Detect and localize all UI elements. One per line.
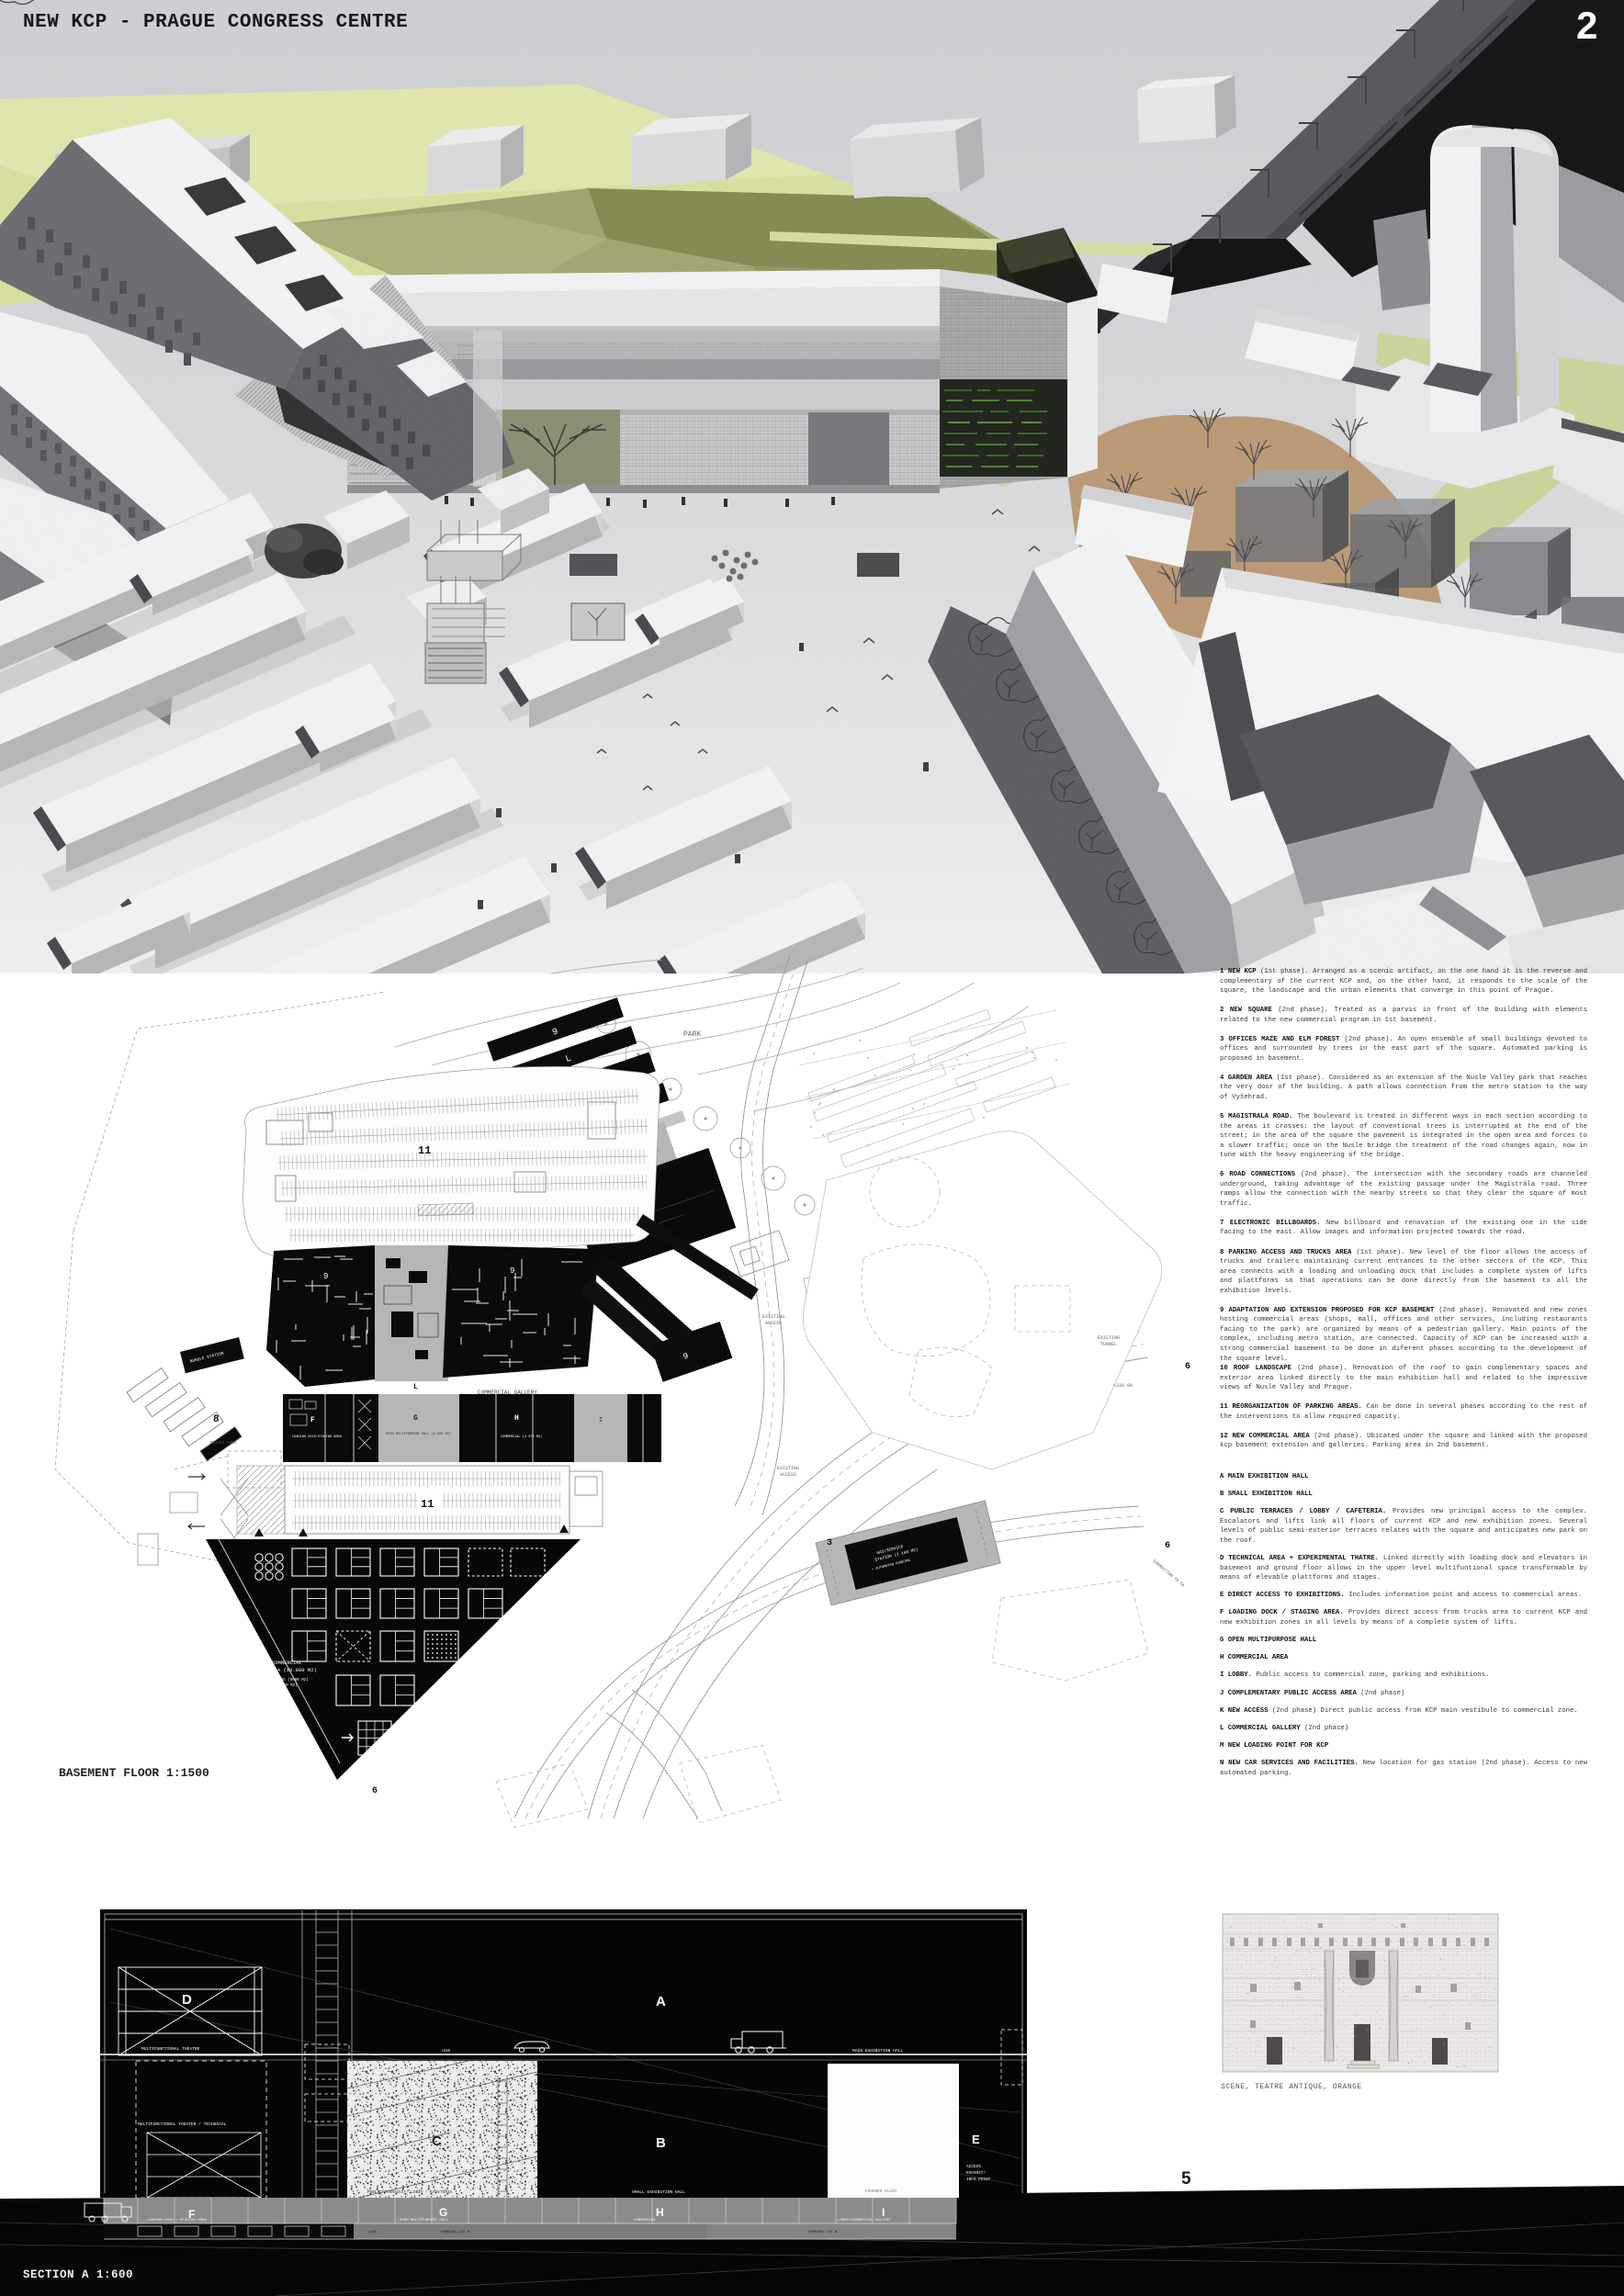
svg-text:EXISTING: EXISTING xyxy=(1098,1335,1120,1341)
svg-text:SMALL EXHIBITION HALL: SMALL EXHIBITION HALL xyxy=(632,2189,685,2195)
svg-text:PUBLIC TERRACES / LOBBY / CAFE: PUBLIC TERRACES / LOBBY / CAFETERIA xyxy=(367,2190,453,2195)
svg-text:ACCESS: ACCESS xyxy=(966,2165,981,2169)
svg-text:F: F xyxy=(310,1416,315,1424)
svg-text:(10.350 M2): (10.350 M2) xyxy=(272,1683,298,1688)
svg-text:LOADING DOCK/STAGING AREA: LOADING DOCK/STAGING AREA xyxy=(292,1435,343,1439)
svg-text:D: D xyxy=(182,1992,192,2008)
svg-text:+236: +236 xyxy=(441,2050,451,2054)
svg-text:EXISTING: EXISTING xyxy=(762,1314,784,1320)
svg-text:E: E xyxy=(972,2133,980,2146)
svg-text:COMMERCIAL: COMMERCIAL xyxy=(272,1660,302,1666)
svg-text:9: 9 xyxy=(510,1266,514,1276)
svg-text:+228: +228 xyxy=(367,2231,377,2234)
svg-text:EXHIBIT/: EXHIBIT/ xyxy=(966,2171,986,2176)
svg-text:8: 8 xyxy=(213,1414,220,1425)
svg-text:3: 3 xyxy=(827,1538,832,1548)
svg-text:A: A xyxy=(656,1994,666,2009)
svg-text:AREA (10.800 M2): AREA (10.800 M2) xyxy=(268,1667,317,1673)
svg-text:I: I xyxy=(599,1417,603,1424)
svg-text:B: B xyxy=(656,2135,666,2151)
svg-text:+ PARKING (9600 M2): + PARKING (9600 M2) xyxy=(265,1678,309,1683)
svg-text:12: 12 xyxy=(277,1694,289,1705)
svg-text:ACCESS: ACCESS xyxy=(780,1472,796,1478)
svg-text:ACCESS: ACCESS xyxy=(765,1321,782,1326)
svg-text:L: L xyxy=(413,1383,418,1391)
svg-text:G: G xyxy=(439,2206,447,2219)
svg-text:MULTIFUNCTIONAL THEATRE: MULTIFUNCTIONAL THEATRE xyxy=(141,2046,200,2052)
svg-text:TRUCKS AREA: TRUCKS AREA xyxy=(209,1440,237,1446)
svg-text:6: 6 xyxy=(1185,1362,1190,1372)
svg-text:TUNNEL: TUNNEL xyxy=(1100,1342,1117,1347)
svg-text:PARKING LEV B: PARKING LEV B xyxy=(808,2231,838,2234)
svg-text:G: G xyxy=(413,1414,418,1423)
svg-text:COMMERCIAL (3.870 M2): COMMERCIAL (3.870 M2) xyxy=(501,1435,542,1439)
svg-text:MAIN EXHIBITION HALL: MAIN EXHIBITION HALL xyxy=(852,2048,903,2054)
svg-text:MULTIFUNCTIONAL THEATER / TECH: MULTIFUNCTIONAL THEATER / TECHNICAL xyxy=(138,2122,227,2127)
svg-text:+236.00: +236.00 xyxy=(1113,1383,1133,1389)
svg-text:SECTION A 1:600: SECTION A 1:600 xyxy=(23,2268,133,2281)
svg-text:C: C xyxy=(432,2133,442,2149)
svg-text:INFO POINT: INFO POINT xyxy=(966,2178,991,2182)
svg-text:CONNECTION TO 5A: CONNECTION TO 5A xyxy=(1152,1559,1186,1589)
svg-text:6: 6 xyxy=(372,1786,378,1796)
svg-text:PARKING LEV B: PARKING LEV B xyxy=(441,2231,470,2234)
svg-text:I: I xyxy=(882,2206,885,2219)
svg-text:11: 11 xyxy=(421,1498,434,1511)
svg-text:EXISTING: EXISTING xyxy=(777,1466,799,1471)
svg-text:6: 6 xyxy=(684,1330,690,1340)
svg-text:H: H xyxy=(656,2206,664,2219)
svg-text:OPEN MULTIPURPOSE HALL (5.900: OPEN MULTIPURPOSE HALL (5.900 M2) xyxy=(386,1432,451,1436)
svg-text:OPEN MULTIPURPOSE HALL: OPEN MULTIPURPOSE HALL xyxy=(400,2219,448,2223)
svg-text:H: H xyxy=(514,1414,519,1423)
svg-text:LOBBY/COMMERCIAL GALLERY: LOBBY/COMMERCIAL GALLERY xyxy=(838,2218,891,2223)
svg-text:11: 11 xyxy=(418,1144,431,1157)
svg-text:9: 9 xyxy=(323,1272,328,1281)
svg-text:LOADING DOCK / STAGING AREA: LOADING DOCK / STAGING AREA xyxy=(147,2218,207,2223)
svg-text:6: 6 xyxy=(1165,1541,1170,1551)
svg-text:COMMERCIAL: COMMERCIAL xyxy=(634,2219,657,2223)
svg-text:ACCESS: ACCESS xyxy=(279,1712,294,1716)
svg-text:PARK: PARK xyxy=(683,1030,701,1039)
svg-text:COVERED PLAZA: COVERED PLAZA xyxy=(865,2189,897,2194)
